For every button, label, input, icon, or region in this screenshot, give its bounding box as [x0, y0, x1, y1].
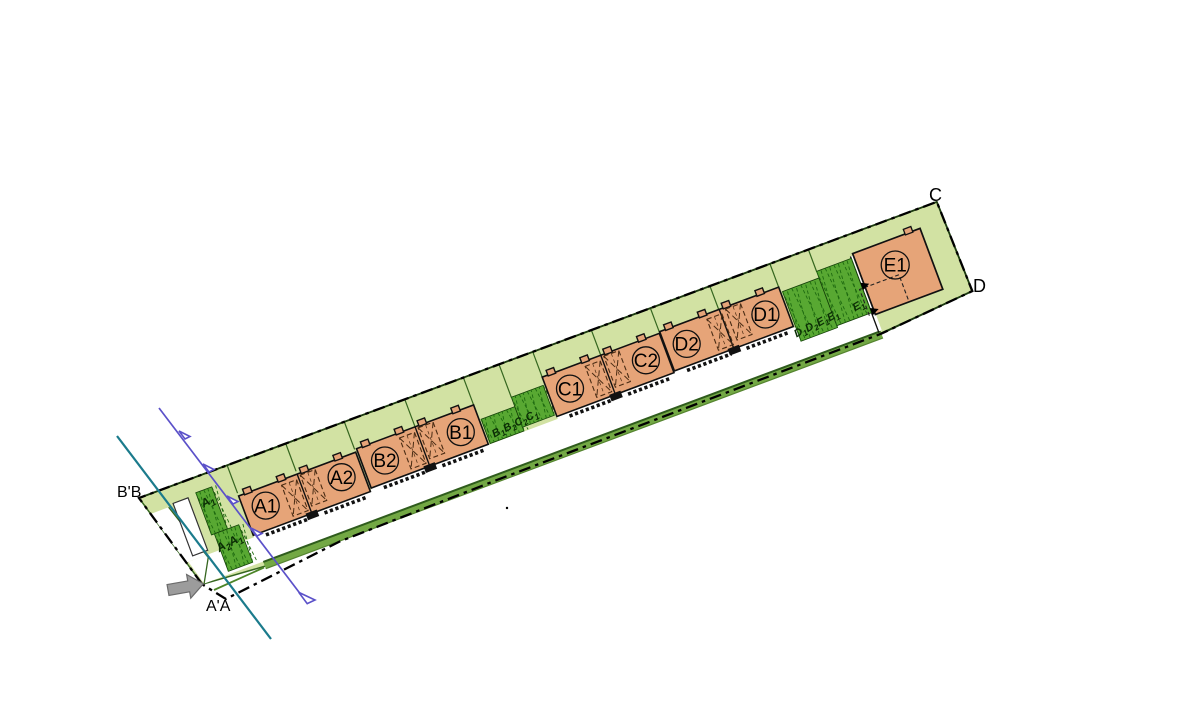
svg-text:C2: C2	[634, 351, 658, 372]
svg-text:D1: D1	[753, 305, 777, 326]
svg-text:D2: D2	[675, 335, 699, 356]
svg-text:C1: C1	[558, 379, 582, 400]
svg-text:B'B: B'B	[117, 484, 141, 501]
svg-text:A'A: A'A	[206, 598, 231, 615]
svg-text:C: C	[929, 185, 942, 205]
svg-text:D: D	[973, 276, 986, 296]
svg-text:A2: A2	[330, 468, 353, 489]
svg-text:B2: B2	[373, 451, 396, 472]
svg-text:E1: E1	[884, 256, 907, 277]
svg-text:A1: A1	[254, 496, 277, 517]
svg-text:B1: B1	[449, 423, 472, 444]
